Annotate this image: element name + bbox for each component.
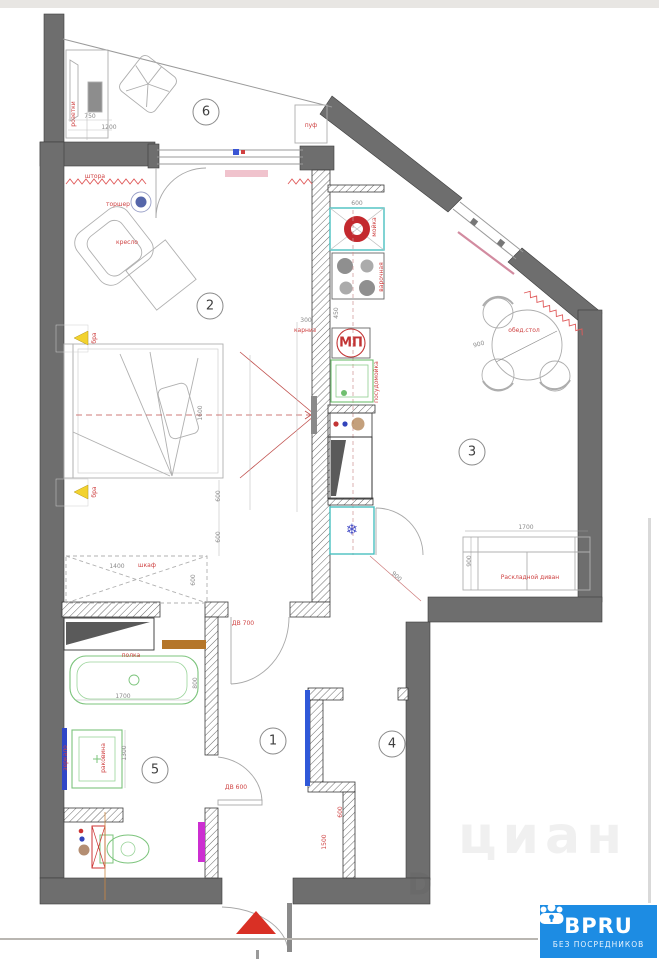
- dim-tv-offset: 300: [300, 318, 311, 324]
- snowflake-icon: ❄: [346, 523, 359, 538]
- room-number-6: 6: [193, 99, 220, 126]
- label-sockets: розетки: [71, 101, 77, 126]
- label-curtain: штора: [85, 174, 105, 180]
- room-5-label: 5: [151, 763, 159, 778]
- dim-desk-length: 1200: [101, 125, 116, 131]
- dim-tub-length: 1700: [115, 694, 130, 700]
- bpru-logo-row: BPRU: [564, 914, 633, 938]
- label-washbasin: раковина: [101, 743, 107, 773]
- label-sconce-top: бра: [92, 332, 98, 343]
- sconce-icon: [74, 485, 88, 499]
- bpru-people-icon: [538, 903, 565, 926]
- room-number-2: 2: [197, 293, 224, 320]
- threshold: [162, 640, 206, 649]
- top-strip: [0, 0, 659, 8]
- sofa: [463, 531, 590, 590]
- dining-table: [492, 310, 562, 380]
- label-pouf: пуф: [305, 123, 318, 129]
- floorplan-page: циан D 1 2 3 4 5 6 розетки 750 1200 пуф …: [0, 0, 659, 960]
- dim-hall-depth: 600: [338, 806, 344, 817]
- label-dining-table: обед.стол: [508, 328, 539, 334]
- label-floor-lamp: торшер: [106, 202, 130, 208]
- label-dishwasher: посудомойка: [374, 361, 380, 403]
- dim-tub-width: 800: [193, 677, 199, 688]
- room-number-4: 4: [379, 731, 406, 758]
- dim-sofa-depth: 900: [467, 555, 473, 566]
- watermark-letter: D: [408, 868, 433, 903]
- dim-wardrobe-depth: 600: [191, 574, 197, 585]
- dim-hob-gap: 450: [334, 307, 340, 318]
- label-sofa: Раскладной диван: [501, 575, 559, 581]
- wc-door-strip: [198, 822, 205, 862]
- hob: [332, 253, 384, 299]
- label-door-600: ДВ 600: [225, 785, 247, 791]
- bedroom-furniture: [56, 192, 223, 603]
- ottoman: [126, 240, 196, 310]
- dishwasher: [331, 360, 373, 402]
- tv: [311, 396, 317, 434]
- room-1-label: 1: [269, 734, 277, 749]
- bathroom-fixtures: [62, 618, 206, 900]
- label-sconce-bottom: бра: [92, 486, 98, 497]
- bpru-logo[interactable]: BPRU БЕЗ ПОСРЕДНИКОВ: [538, 903, 659, 960]
- label-shelf: полка: [122, 653, 141, 659]
- label-kitchen-sink: мойка: [372, 217, 378, 236]
- label-cornice: карниз: [294, 328, 316, 334]
- bottom-frame-line: [0, 938, 540, 940]
- room-number-5: 5: [142, 757, 169, 784]
- room-4-label: 4: [388, 737, 396, 752]
- hall-blue-strip: [305, 690, 310, 786]
- dim-bed-gap-a: 600: [216, 490, 222, 501]
- room-3-label: 3: [468, 445, 476, 460]
- label-door-700: ДВ 700: [232, 621, 254, 627]
- dim-desk-width: 750: [84, 114, 95, 120]
- label-hob: варочная: [379, 262, 385, 291]
- bpru-brand: BPRU: [564, 914, 633, 938]
- dim-sofa-width: 1700: [518, 525, 533, 531]
- watermark: циан: [458, 806, 628, 866]
- label-wardrobe: шкаф: [138, 563, 156, 569]
- window-accents: [225, 149, 514, 274]
- label-mirror: зеркало: [63, 745, 69, 771]
- dining-set: [482, 297, 570, 391]
- room-6-label: 6: [202, 105, 210, 120]
- room-number-1: 1: [260, 728, 287, 755]
- room-2-label: 2: [206, 299, 214, 314]
- right-margin-line: [648, 518, 651, 938]
- dimension-lines: [76, 112, 297, 788]
- dim-vanity-width: 1300: [122, 745, 128, 760]
- window-sill: [225, 170, 268, 177]
- dim-sink-width: 600: [351, 201, 362, 207]
- dim-hall-niche: 1500: [322, 834, 328, 849]
- dim-bed-gap-b: 600: [216, 531, 222, 542]
- sconce-icon: [74, 331, 88, 345]
- bpru-tagline: БЕЗ ПОСРЕДНИКОВ: [553, 940, 645, 949]
- bed-headboard: [64, 344, 73, 478]
- dim-wardrobe-width: 1400: [109, 564, 124, 570]
- room-number-3: 3: [459, 439, 486, 466]
- label-microwave: МП: [339, 337, 363, 350]
- dim-bed-width: 1600: [198, 405, 204, 420]
- label-armchair: кресло: [116, 240, 138, 246]
- entrance-door: [236, 903, 292, 959]
- armchair: [69, 201, 159, 291]
